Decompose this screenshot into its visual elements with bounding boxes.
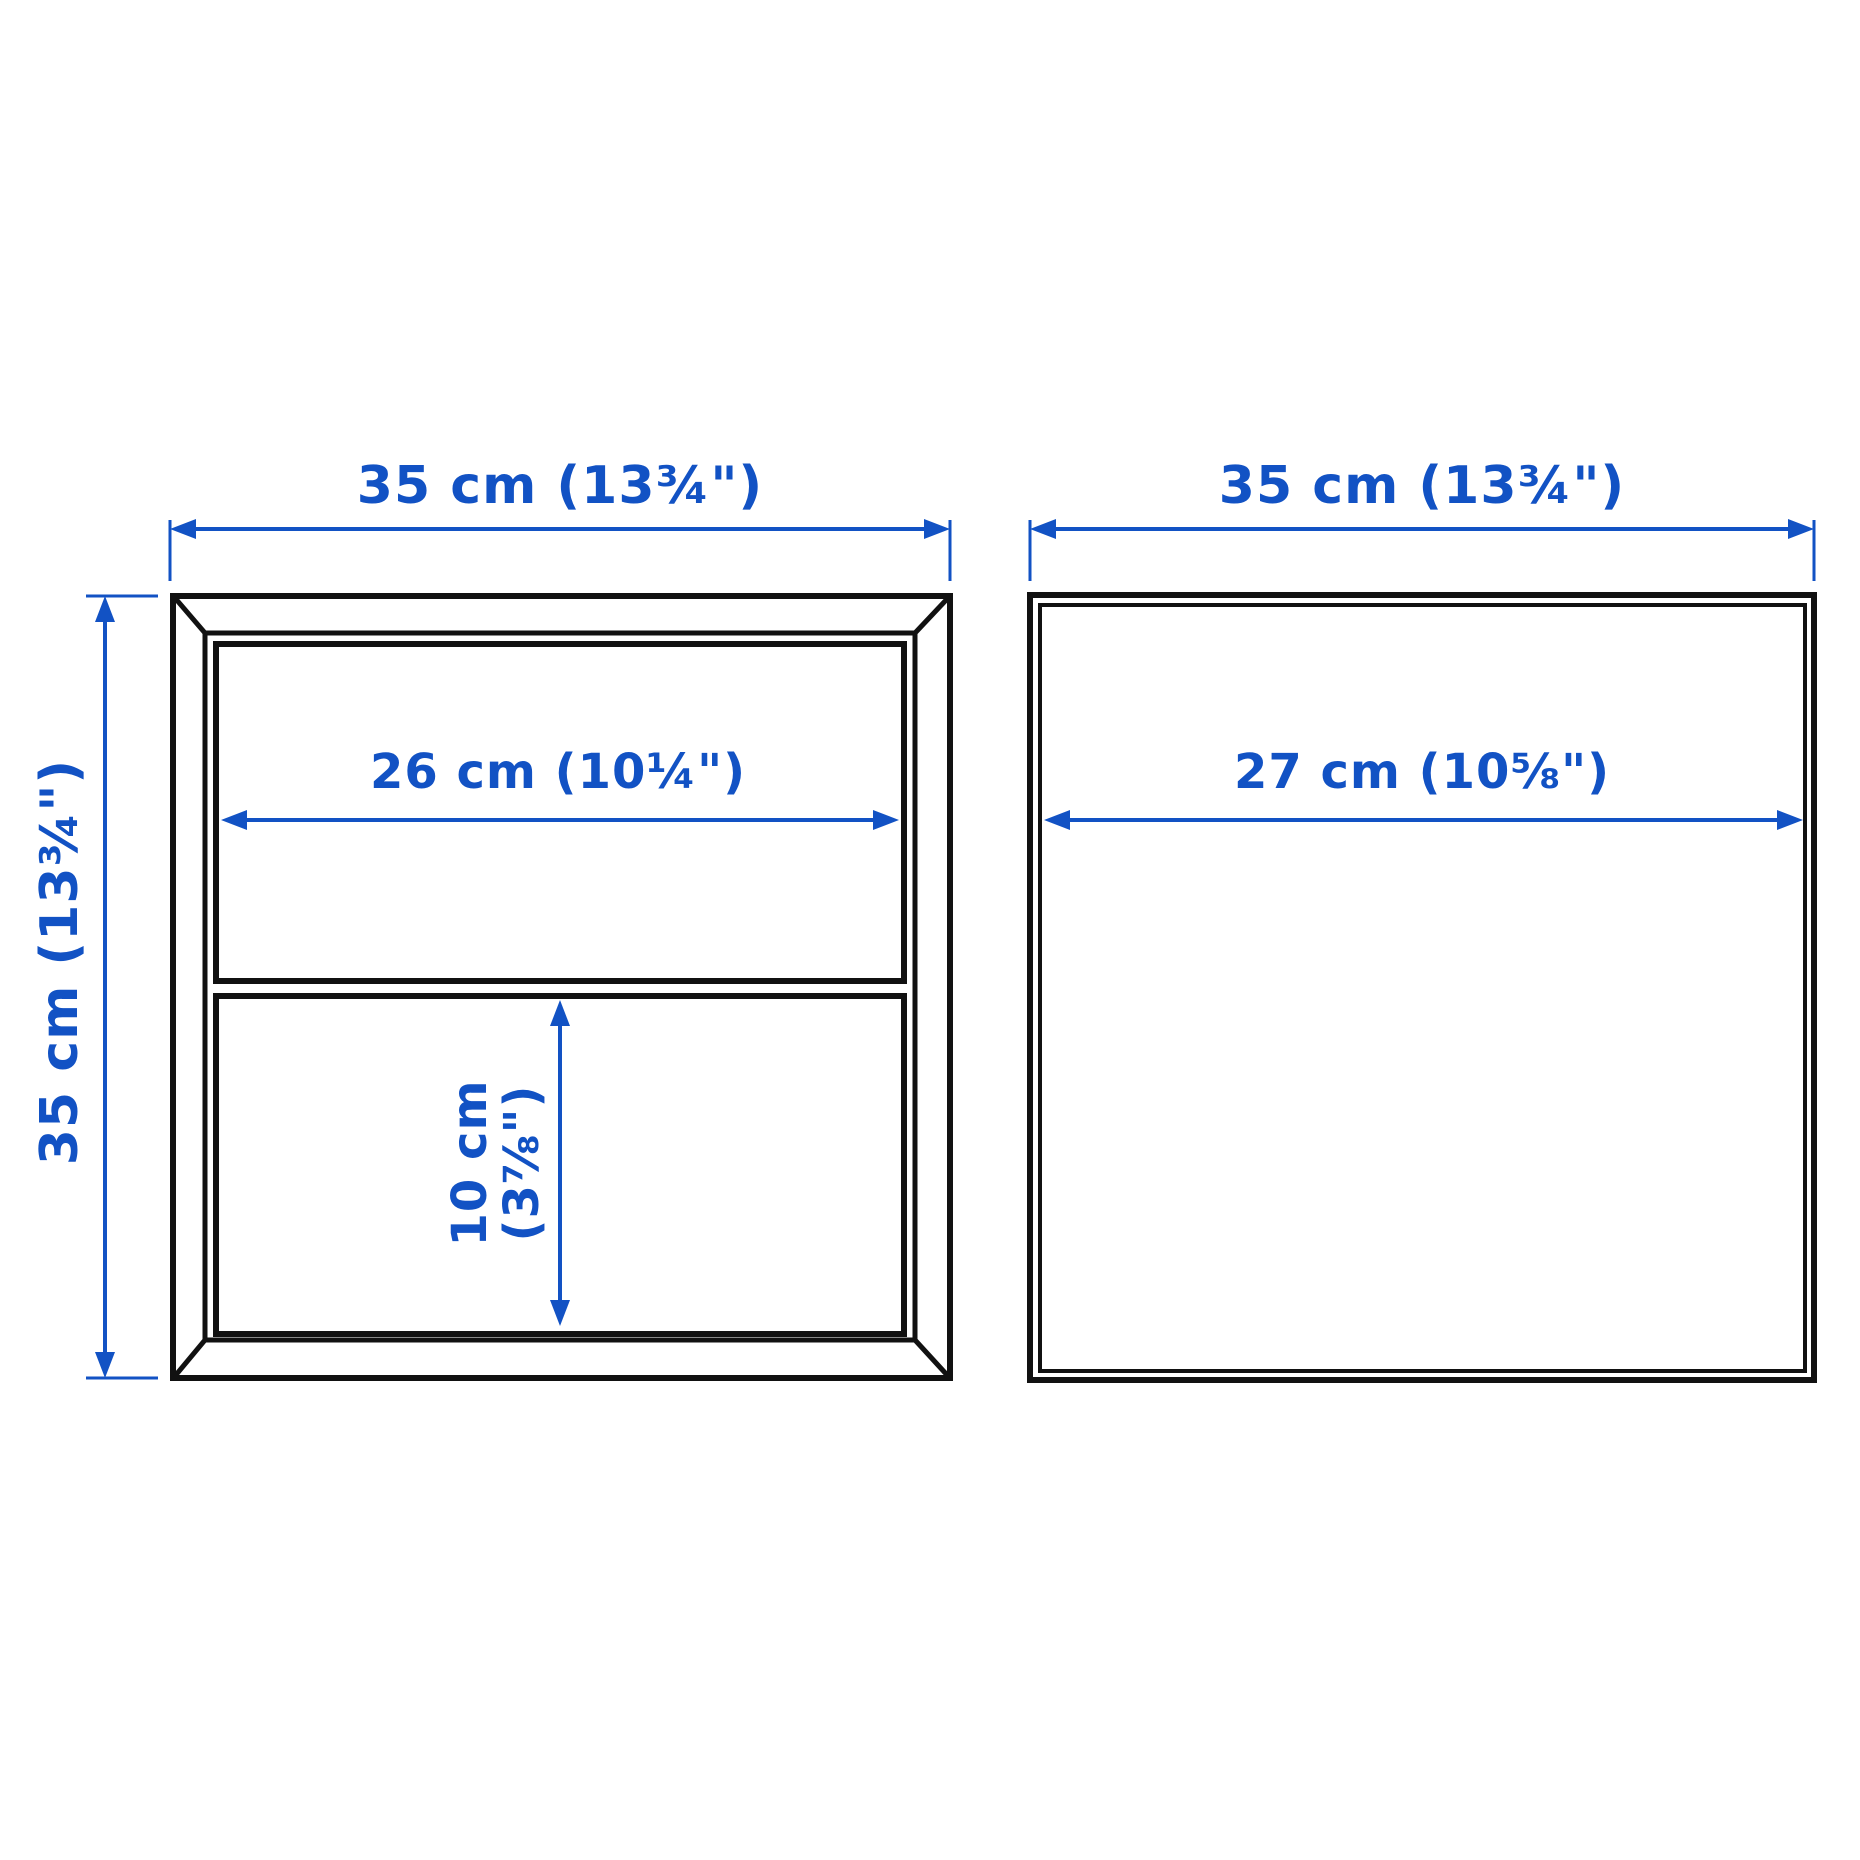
compartment-height-label-line2: (3⅞")	[497, 1080, 549, 1247]
side-width-dimension	[1030, 519, 1814, 581]
front-height-label: 35 cm (13¾")	[32, 759, 88, 1165]
depth-dimension	[1044, 810, 1803, 830]
front-height-dimension	[86, 596, 158, 1378]
side-view-drawing	[1030, 595, 1814, 1380]
dimension-diagram: 35 cm (13¾") 35 cm (13¾") 35 cm (13¾") 2…	[0, 0, 1860, 1860]
front-width-label: 35 cm (13¾")	[357, 458, 763, 514]
side-inner-outline	[1040, 605, 1805, 1371]
side-outer-outline	[1030, 595, 1814, 1380]
shelf-width-dimension	[221, 810, 899, 830]
compartment-height-dimension	[550, 1000, 570, 1326]
shelf-width-label: 26 cm (10¼")	[370, 747, 746, 799]
side-width-label: 35 cm (13¾")	[1219, 458, 1625, 514]
depth-label: 27 cm (10⅝")	[1234, 747, 1610, 799]
compartment-height-label-line1: 10 cm	[445, 1080, 497, 1247]
diagram-artwork	[0, 0, 1860, 1860]
front-upper-compartment	[216, 644, 904, 981]
compartment-height-label: 10 cm (3⅞")	[445, 1080, 549, 1247]
front-width-dimension	[170, 519, 950, 581]
